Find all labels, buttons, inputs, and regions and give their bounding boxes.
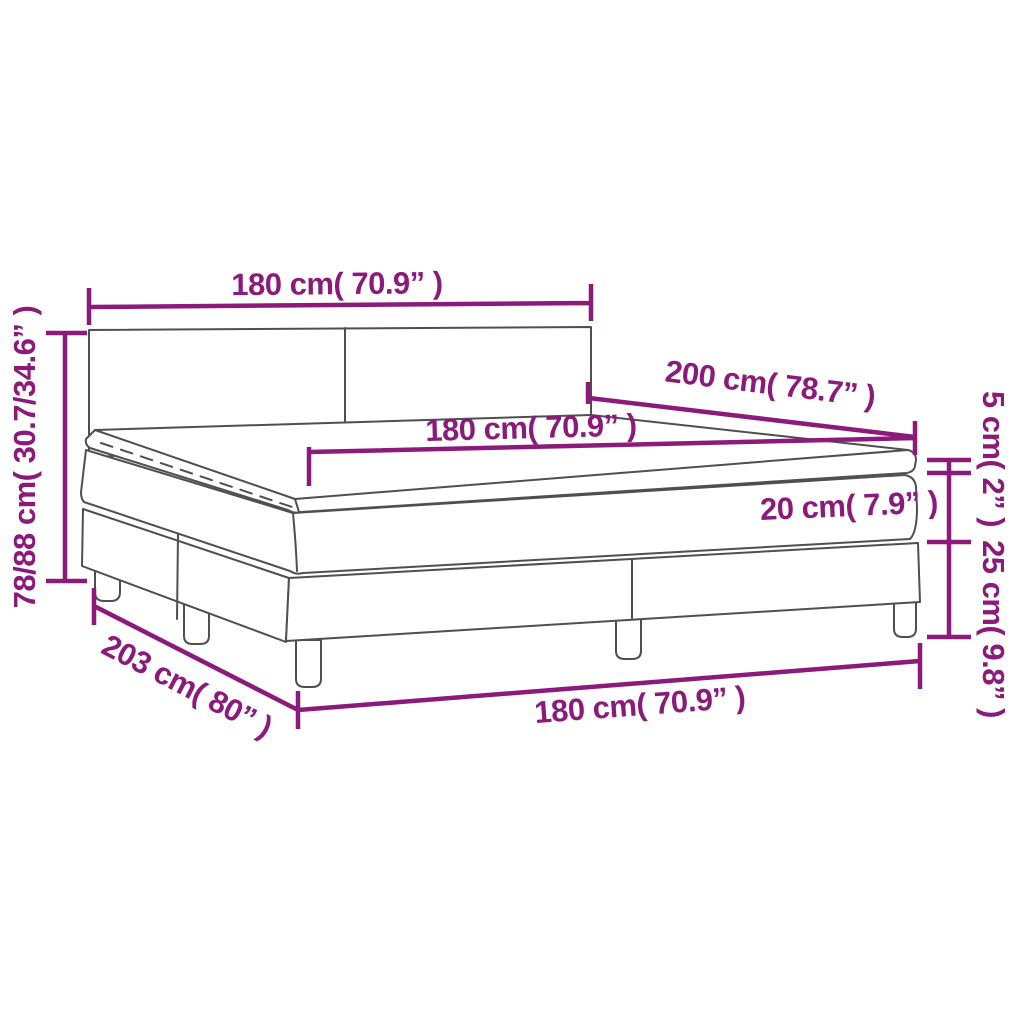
leg-front-left — [296, 640, 321, 687]
dimension-line — [46, 333, 87, 581]
base-height-label: 25 cm( 9.8” ) — [976, 540, 1011, 718]
dimension-label: 180 cm( 70.9” ) — [425, 407, 637, 448]
dimension-base-width: 180 cm( 70.9” ) — [298, 643, 920, 730]
dimension-label: 200 cm( 78.7” ) — [663, 353, 877, 413]
bed-dimension-drawing: 180 cm( 70.9” ) 78/88 cm( 30.7/34.6” ) 2… — [0, 0, 1024, 1024]
dimension-label: 78/88 cm( 30.7/34.6” ) — [7, 306, 42, 609]
dimension-height-bracket: 5 cm( 2” ) 25 cm( 9.8” ) — [927, 391, 1011, 718]
dimension-label: 180 cm( 70.9” ) — [231, 265, 443, 302]
leg-front-middle — [616, 618, 641, 659]
dimension-overall-height: 78/88 cm( 30.7/34.6” ) — [7, 306, 87, 609]
dimension-headboard-width: 180 cm( 70.9” ) — [89, 265, 591, 325]
topper-height-label: 5 cm( 2” ) — [976, 391, 1011, 527]
base-left-seam — [177, 534, 178, 619]
dimension-diagram: 180 cm( 70.9” ) 78/88 cm( 30.7/34.6” ) 2… — [0, 0, 1024, 1024]
